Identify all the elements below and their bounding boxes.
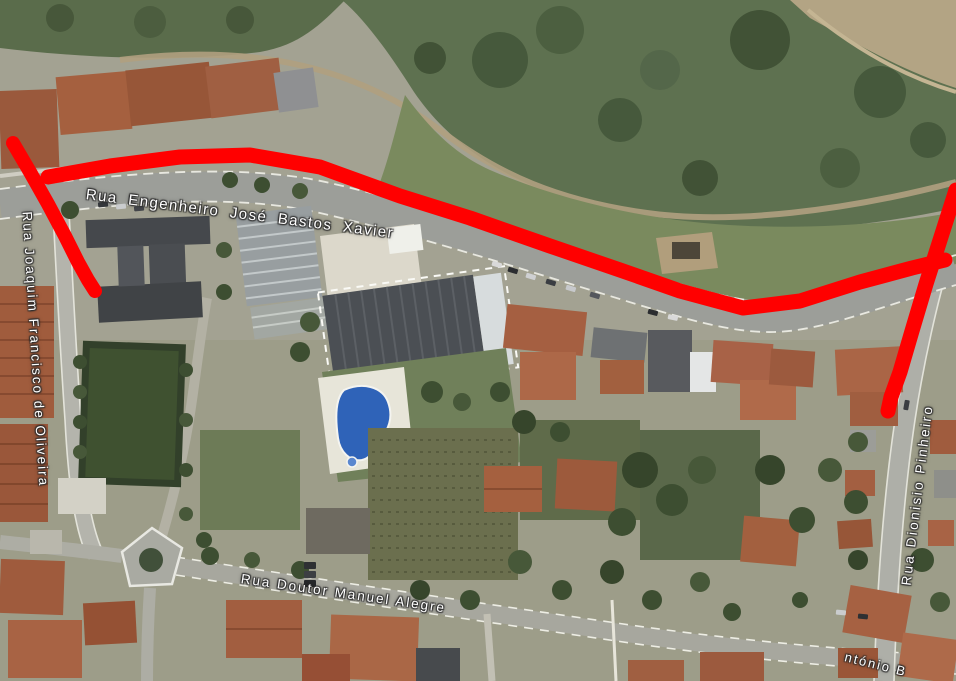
apartment-blocks-left xyxy=(0,286,54,522)
underpass xyxy=(656,232,718,274)
driveway-lane xyxy=(487,614,492,681)
kids-pool xyxy=(347,457,357,467)
satellite-map: Rua Engenheiro José Bastos XavierRua Joa… xyxy=(0,0,956,681)
small-white-building xyxy=(387,224,424,254)
sports-field xyxy=(82,344,183,483)
satellite-base-layer xyxy=(0,0,956,681)
